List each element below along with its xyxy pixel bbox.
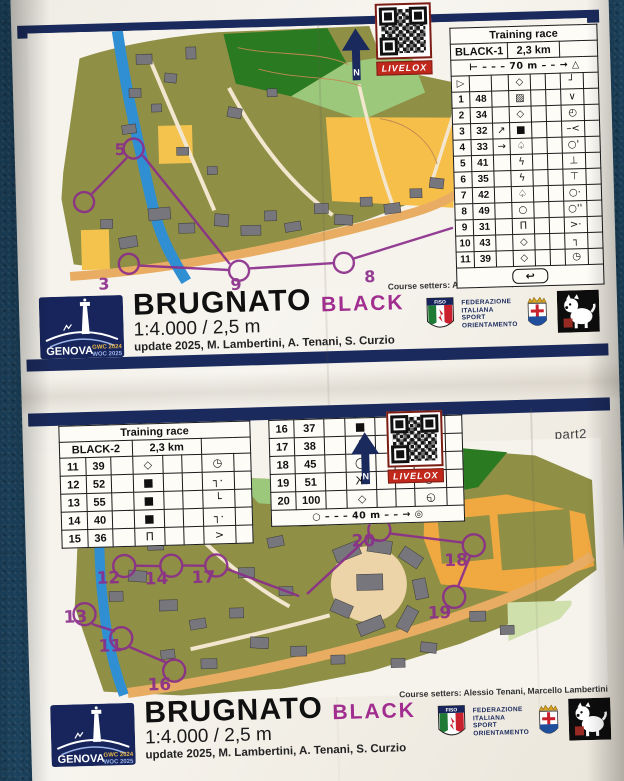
control-code-cell: 40	[87, 511, 113, 530]
qr-code-icon	[386, 410, 444, 468]
control-number-cell: 9	[455, 220, 474, 237]
dog-mascot-logo	[557, 290, 600, 333]
genova-year-1: GWC 2024	[92, 344, 122, 351]
detail-symbol: ○''	[564, 200, 587, 217]
livelox-label: LIVELOX	[376, 60, 432, 76]
qr-finder-icon	[391, 445, 409, 463]
feature-symbol: ♤	[510, 138, 532, 155]
detail-symbol: ⊤	[563, 169, 586, 186]
control-number-18: 18	[444, 550, 468, 571]
empty-cell	[559, 40, 597, 57]
control-description-table-black2-left: Training race BLACK-2 2,3 km 11 39 ◇ ◷	[58, 420, 253, 548]
control-code-cell: 41	[472, 155, 494, 172]
direction-symbol: →	[493, 139, 511, 155]
feature-symbol: ◇	[133, 455, 164, 474]
genova-event-logo: GENOVA GWC 2024 WOC 2025	[50, 703, 136, 767]
direction-symbol	[495, 219, 513, 235]
direction-symbol	[326, 490, 348, 509]
control-number-17: 17	[191, 568, 215, 589]
control-number-16: 16	[147, 675, 171, 696]
fiso-federation-text: FEDERAZIONE ITALIANA SPORT ORIENTAMENTO	[473, 706, 530, 738]
control-number-19: 19	[427, 603, 451, 624]
control-number-13: 13	[63, 607, 87, 628]
control-code-cell: 38	[295, 437, 325, 456]
feature-symbol: ■	[134, 509, 165, 528]
control-number-20: 20	[351, 531, 375, 552]
livelox-qr-block: LIVELOX	[386, 410, 444, 484]
control-code-cell: 49	[473, 203, 495, 220]
control-number-cell: 18	[270, 456, 296, 475]
control-number-cell: 5	[453, 156, 472, 173]
control-code-cell: 33	[471, 139, 493, 156]
direction-symbol	[492, 91, 510, 107]
genova-year-1: GWC 2024	[103, 752, 133, 759]
qr-finder-icon	[379, 7, 397, 25]
feature-symbol: Π	[135, 527, 166, 546]
qr-code-icon	[375, 2, 433, 60]
feature-symbol: ■	[510, 122, 532, 139]
control-number-cell: 16	[269, 420, 295, 439]
control-code-cell: 36	[87, 529, 113, 548]
feature-symbol: ◇	[513, 234, 535, 251]
detail-symbol: ◷	[565, 248, 588, 265]
photo-background-fabric: part1	[0, 0, 624, 781]
control-description-table-black1: Training race BLACK-1 2,3 km ⊢ – – – 70 …	[449, 24, 604, 289]
detail-symbol: –<	[562, 121, 585, 138]
feature-symbol: ◇	[347, 489, 377, 508]
control-number-14: 14	[144, 569, 168, 590]
fiso-wordmark: FISO	[434, 299, 446, 305]
control-number-cell: 8	[455, 204, 474, 221]
detail-symbol: ┘	[560, 73, 583, 90]
detail-symbol: └	[202, 489, 235, 508]
feature-symbol: ◇	[513, 250, 535, 267]
feature-symbol: ϟ	[511, 170, 533, 187]
genova-event-logo: GENOVA GWC 2024 WOC 2025	[39, 295, 125, 359]
control-number-cell: 3	[453, 124, 472, 141]
genova-year-2: WOC 2025	[104, 759, 134, 766]
course-length-cell: 2,3 km	[132, 438, 201, 456]
control-code-cell: 37	[294, 419, 324, 438]
orienteering-map-sheet: part1	[10, 0, 624, 781]
detail-symbol: >	[203, 525, 236, 544]
control-number-cell: 11	[60, 458, 86, 477]
fiso-wordmark: FISO	[446, 707, 458, 713]
detail-symbol: ◵	[415, 488, 447, 507]
feature-symbol: ■	[133, 473, 164, 492]
direction-symbol	[325, 472, 347, 491]
detail-symbol: ○·	[563, 184, 586, 201]
control-number-cell: 20	[271, 492, 297, 511]
livelox-label: LIVELOX	[388, 468, 444, 484]
detail-symbol: ┐·	[202, 471, 235, 490]
sponsor-logos: FISO FEDERAZIONE ITALIANA SPORT ORIENTAM…	[437, 698, 611, 745]
qr-finder-icon	[390, 415, 408, 433]
direction-symbol	[324, 436, 346, 455]
control-number-cell: 11	[456, 252, 475, 269]
control-code-cell: 39	[474, 251, 496, 268]
direction-symbol	[492, 107, 510, 123]
direction-symbol: ↗	[492, 123, 510, 139]
direction-symbol	[496, 235, 514, 251]
direction-symbol	[113, 510, 135, 529]
control-code-cell: 34	[470, 107, 492, 124]
detail-symbol: ◴	[561, 105, 584, 122]
control-number-cell: 19	[270, 474, 296, 493]
control-code-cell: 39	[85, 457, 111, 476]
control-code-cell: 35	[472, 171, 494, 188]
direction-symbol	[494, 187, 512, 203]
feature-symbol: ■	[134, 491, 165, 510]
control-number-cell: 4	[453, 140, 472, 157]
detail-symbol: ┐·	[203, 507, 236, 526]
control-code-cell: 42	[473, 187, 495, 204]
north-label: N	[362, 471, 369, 481]
control-code-cell: 100	[296, 491, 326, 510]
north-label: N	[353, 67, 360, 77]
control-number-cell: 2	[452, 108, 471, 125]
livelox-qr-block: LIVELOX	[375, 2, 433, 76]
detail-symbol: ◷	[201, 453, 234, 472]
north-arrow-icon: N	[341, 28, 370, 81]
control-number-cell: 15	[62, 530, 88, 549]
control-code-cell: 31	[474, 219, 496, 236]
control-number-cell: 14	[61, 512, 87, 531]
direction-symbol	[494, 171, 512, 187]
course-length-cell: 2,3 km	[507, 41, 559, 58]
control-number-cell: 6	[454, 172, 473, 189]
control-number-cell: 17	[269, 438, 295, 457]
feature-symbol: ◇	[508, 74, 530, 91]
control-number-cell: 12	[60, 476, 86, 495]
feature-symbol: ♤	[512, 186, 534, 203]
control-code-cell: 51	[296, 473, 326, 492]
fiso-federation-text: FEDERAZIONE ITALIANA SPORT ORIENTAMENTO	[461, 298, 518, 330]
feature-symbol: ○	[512, 202, 534, 219]
direction-symbol	[112, 474, 134, 493]
course-name-label: BLACK	[321, 291, 405, 317]
control-code-cell: 55	[86, 493, 112, 512]
direction-symbol	[111, 456, 133, 475]
qr-finder-icon	[420, 414, 438, 432]
control-number-11: 11	[98, 636, 122, 657]
feature-symbol: Π	[512, 218, 534, 235]
start-triangle-icon: ▷	[451, 76, 470, 93]
control-number-cell: 1	[452, 92, 471, 109]
fiso-logo: FISO	[426, 297, 455, 334]
fiso-logo: FISO	[438, 705, 467, 742]
feature-symbol: ϟ	[511, 154, 533, 171]
direction-symbol	[496, 251, 514, 267]
course-name-label: BLACK	[332, 699, 416, 725]
control-code-cell: 52	[86, 475, 112, 494]
north-arrow-icon: N	[351, 432, 380, 485]
detail-symbol: ⊥	[562, 153, 585, 170]
detail-symbol: >·	[564, 216, 587, 233]
control-number-cell: 7	[454, 188, 473, 205]
finish-row: ↩	[457, 264, 605, 288]
control-number-12: 12	[96, 568, 120, 589]
sponsor-logos: FISO FEDERAZIONE ITALIANA SPORT ORIENTAM…	[426, 290, 600, 337]
feature-symbol: ▨	[509, 90, 531, 107]
direction-symbol	[495, 203, 513, 219]
control-code-cell: 32	[471, 123, 493, 140]
control-number-5: 5	[114, 140, 126, 159]
control-code-cell: 45	[295, 455, 325, 474]
control-number-cell: 13	[61, 494, 87, 513]
detail-symbol: ∨	[561, 89, 584, 106]
municipal-crest-logo	[524, 294, 551, 331]
control-number-cell: 10	[456, 236, 475, 253]
detail-symbol: ┐	[565, 232, 588, 249]
direction-symbol	[113, 528, 135, 547]
qr-finder-icon	[409, 6, 427, 24]
detail-symbol: ○'	[562, 137, 585, 154]
course-name-cell: BLACK-1	[450, 43, 508, 61]
direction-symbol	[325, 454, 347, 473]
genova-wordmark: GENOVA	[57, 753, 104, 766]
direction-symbol	[493, 155, 511, 171]
genova-wordmark: GENOVA	[46, 345, 93, 358]
dog-mascot-logo	[568, 698, 611, 741]
finish-symbol-icon: ↩	[512, 268, 548, 284]
control-code-cell: 48	[470, 91, 492, 108]
direction-symbol	[324, 418, 346, 437]
empty-cell	[201, 437, 251, 454]
feature-symbol: ◇	[509, 106, 531, 123]
control-code-cell: 43	[474, 235, 496, 252]
direction-symbol	[112, 492, 134, 511]
qr-finder-icon	[380, 37, 398, 55]
